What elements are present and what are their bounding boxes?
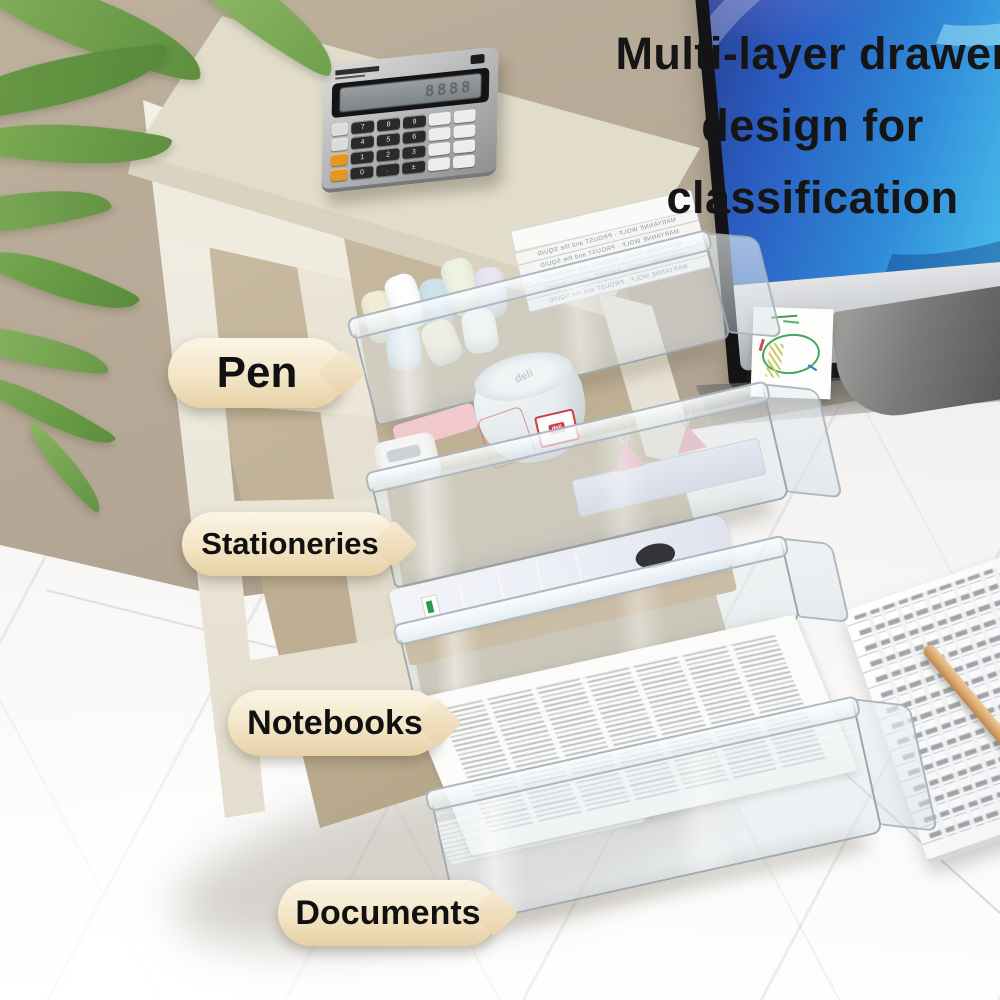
lcd-digits: 8888 bbox=[340, 73, 482, 112]
headline: Multi-layer drawer design for classifica… bbox=[615, 18, 1000, 234]
canister-embossed-brand: deli bbox=[512, 367, 534, 386]
label-notebooks: Notebooks bbox=[228, 690, 442, 756]
label-stationeries: Stationeries bbox=[182, 512, 398, 576]
product-photo: MARYANNE WOLF · PROUST and the SQUID MAR… bbox=[0, 0, 1000, 1000]
key-9[interactable]: 9 bbox=[403, 114, 426, 128]
key-6[interactable]: 6 bbox=[403, 129, 426, 143]
headline-line-2: design for bbox=[615, 90, 1000, 162]
key-8[interactable]: 8 bbox=[377, 117, 400, 131]
calculator-solar-panel bbox=[471, 54, 485, 65]
key-dot[interactable]: . bbox=[376, 162, 399, 176]
label-pen: Pen bbox=[168, 338, 346, 408]
key-2[interactable]: 2 bbox=[377, 147, 400, 161]
calculator-keypad[interactable]: 7 8 9 4 5 6 1 2 3 0 . ± bbox=[330, 108, 488, 183]
key-4[interactable]: 4 bbox=[351, 135, 374, 149]
headline-line-1: Multi-layer drawer bbox=[615, 18, 1000, 90]
key-0[interactable]: 0 bbox=[350, 165, 373, 179]
calculator-brand-mark bbox=[335, 66, 379, 76]
key-5[interactable]: 5 bbox=[377, 132, 400, 146]
label-documents: Documents bbox=[278, 880, 498, 946]
headline-line-3: classification bbox=[615, 162, 1000, 234]
key-clear[interactable] bbox=[331, 153, 348, 167]
key-7[interactable]: 7 bbox=[351, 120, 374, 134]
key-1[interactable]: 1 bbox=[351, 150, 374, 164]
key-plusminus[interactable]: ± bbox=[402, 160, 425, 174]
key-on[interactable] bbox=[331, 168, 348, 182]
calculator[interactable]: 8888 7 8 9 4 5 6 1 2 3 0 . ± bbox=[321, 46, 498, 193]
key-3[interactable]: 3 bbox=[402, 145, 425, 159]
